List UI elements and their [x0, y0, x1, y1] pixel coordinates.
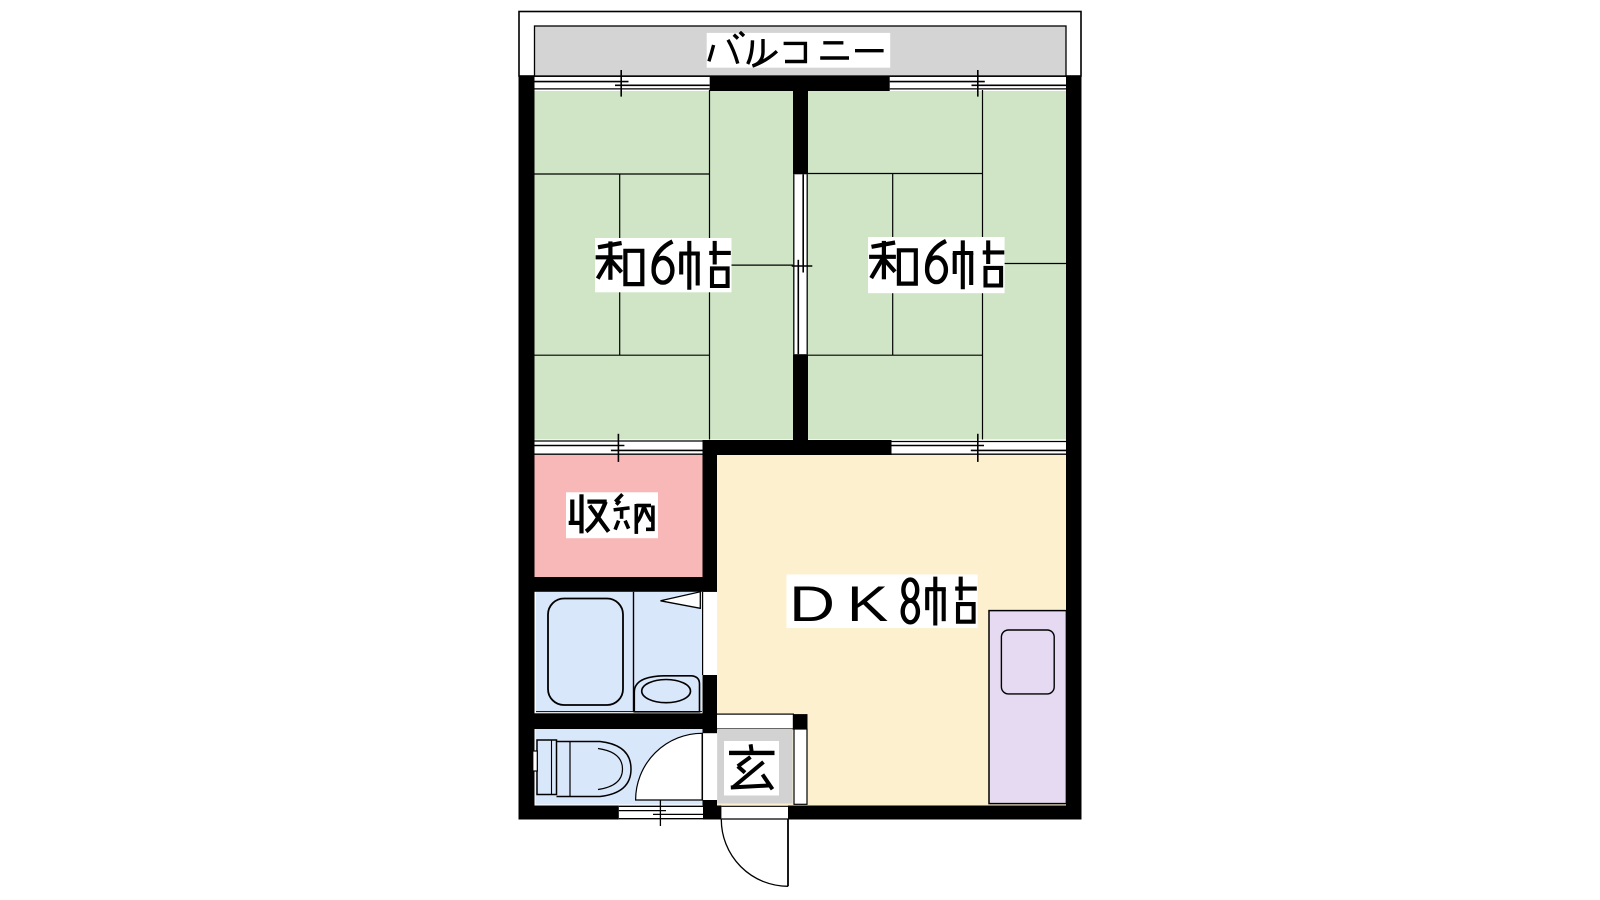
- svg-text:K: K: [847, 576, 888, 632]
- svg-text:D: D: [789, 576, 835, 632]
